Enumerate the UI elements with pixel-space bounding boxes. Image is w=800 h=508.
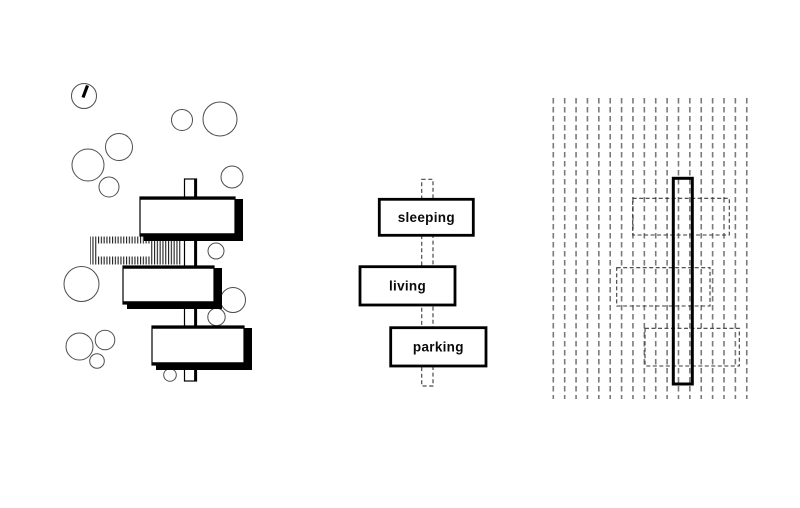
program-box-label: living bbox=[389, 279, 426, 294]
building-outline bbox=[152, 326, 244, 365]
tree-circle bbox=[164, 369, 177, 382]
program-box-label: sleeping bbox=[398, 210, 455, 225]
program-box-parking: parking bbox=[391, 328, 486, 366]
tree-circle bbox=[106, 134, 133, 161]
hatch-window bbox=[97, 244, 151, 257]
program-box-sleeping: sleeping bbox=[379, 199, 473, 235]
tree-circle bbox=[95, 330, 115, 350]
tree-circle bbox=[203, 102, 237, 136]
program-box-label: parking bbox=[413, 340, 464, 355]
north-arrow-icon bbox=[72, 84, 97, 109]
program-box-living: living bbox=[360, 267, 455, 305]
tree-circle bbox=[221, 166, 243, 188]
room-outline-dashed bbox=[617, 268, 710, 306]
building-outline bbox=[123, 266, 214, 304]
building-mass bbox=[123, 266, 223, 309]
tree-circle bbox=[208, 243, 224, 259]
site-plan-panel bbox=[64, 84, 252, 382]
concept-diagram-page: sleepinglivingparking bbox=[0, 0, 800, 508]
room-outline-dashed bbox=[633, 198, 730, 235]
tree-circle bbox=[64, 267, 99, 302]
tree-circle bbox=[221, 288, 246, 313]
north-tick bbox=[83, 86, 88, 98]
tree-circle bbox=[66, 333, 93, 360]
building-mass bbox=[140, 197, 244, 241]
tree-circle bbox=[99, 177, 119, 197]
grid-diagram-panel bbox=[553, 98, 746, 399]
building-outline bbox=[140, 197, 235, 236]
program-diagram-panel: sleepinglivingparking bbox=[360, 179, 486, 386]
concept-diagram-canvas: sleepinglivingparking bbox=[0, 0, 800, 508]
tree-circle bbox=[72, 149, 104, 181]
tree-circle bbox=[172, 110, 193, 131]
building-mass bbox=[152, 326, 253, 370]
tree-circle bbox=[208, 308, 225, 325]
tree-circle bbox=[90, 354, 105, 369]
